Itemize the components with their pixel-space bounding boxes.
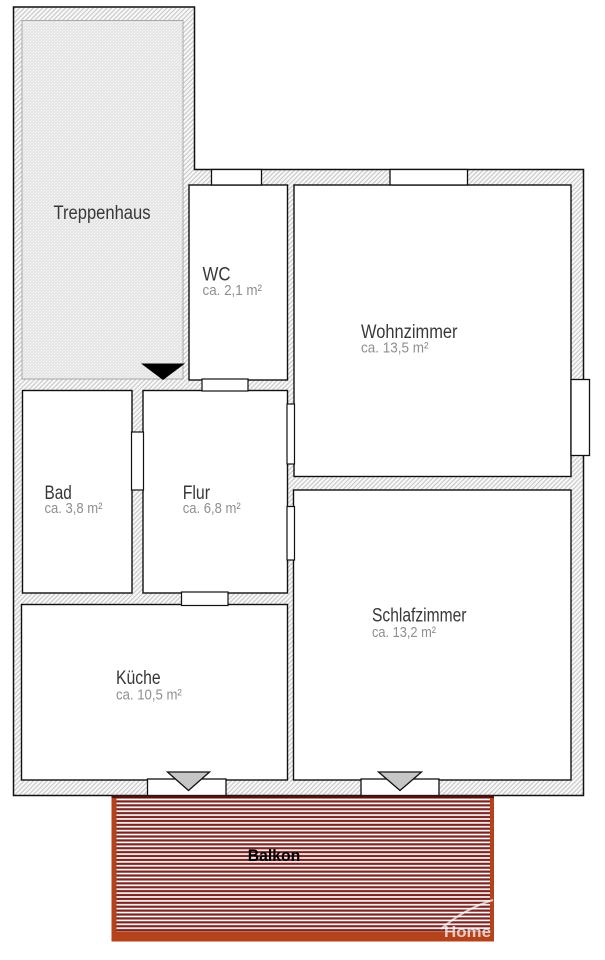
svg-text:ca. 13,5 m²: ca. 13,5 m² — [361, 340, 429, 357]
svg-text:Home: Home — [444, 924, 491, 941]
svg-text:ca. 3,8 m²: ca. 3,8 m² — [45, 500, 103, 517]
svg-text:ca. 6,8 m²: ca. 6,8 m² — [183, 500, 241, 517]
svg-text:ca. 10,5 m²: ca. 10,5 m² — [116, 687, 182, 704]
svg-text:ca. 2,1 m²: ca. 2,1 m² — [203, 282, 263, 299]
svg-text:ca. 13,2 m²: ca. 13,2 m² — [372, 624, 436, 641]
svg-text:Balkon: Balkon — [248, 846, 300, 865]
svg-text:Treppenhaus: Treppenhaus — [54, 203, 151, 224]
